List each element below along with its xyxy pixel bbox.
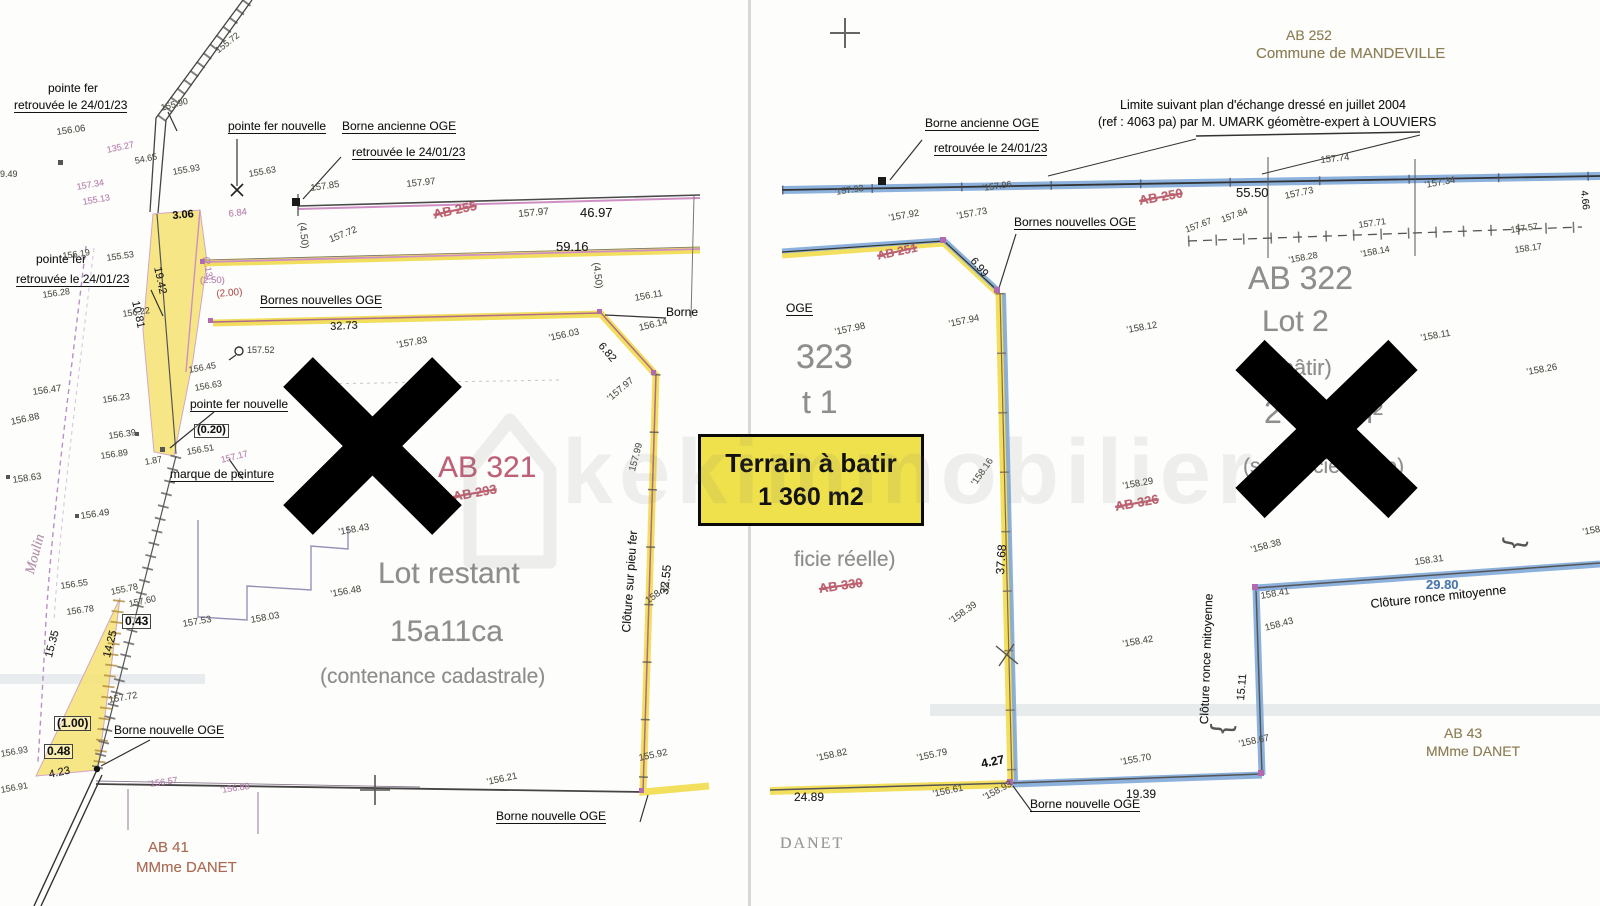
crossed-out-mark-left [298,372,447,520]
x-marks-layer [0,0,1600,906]
cadastral-plan: pointe ferretrouvée le 24/01/23156.06155… [0,0,1600,906]
crossed-out-mark-right [1250,355,1403,503]
